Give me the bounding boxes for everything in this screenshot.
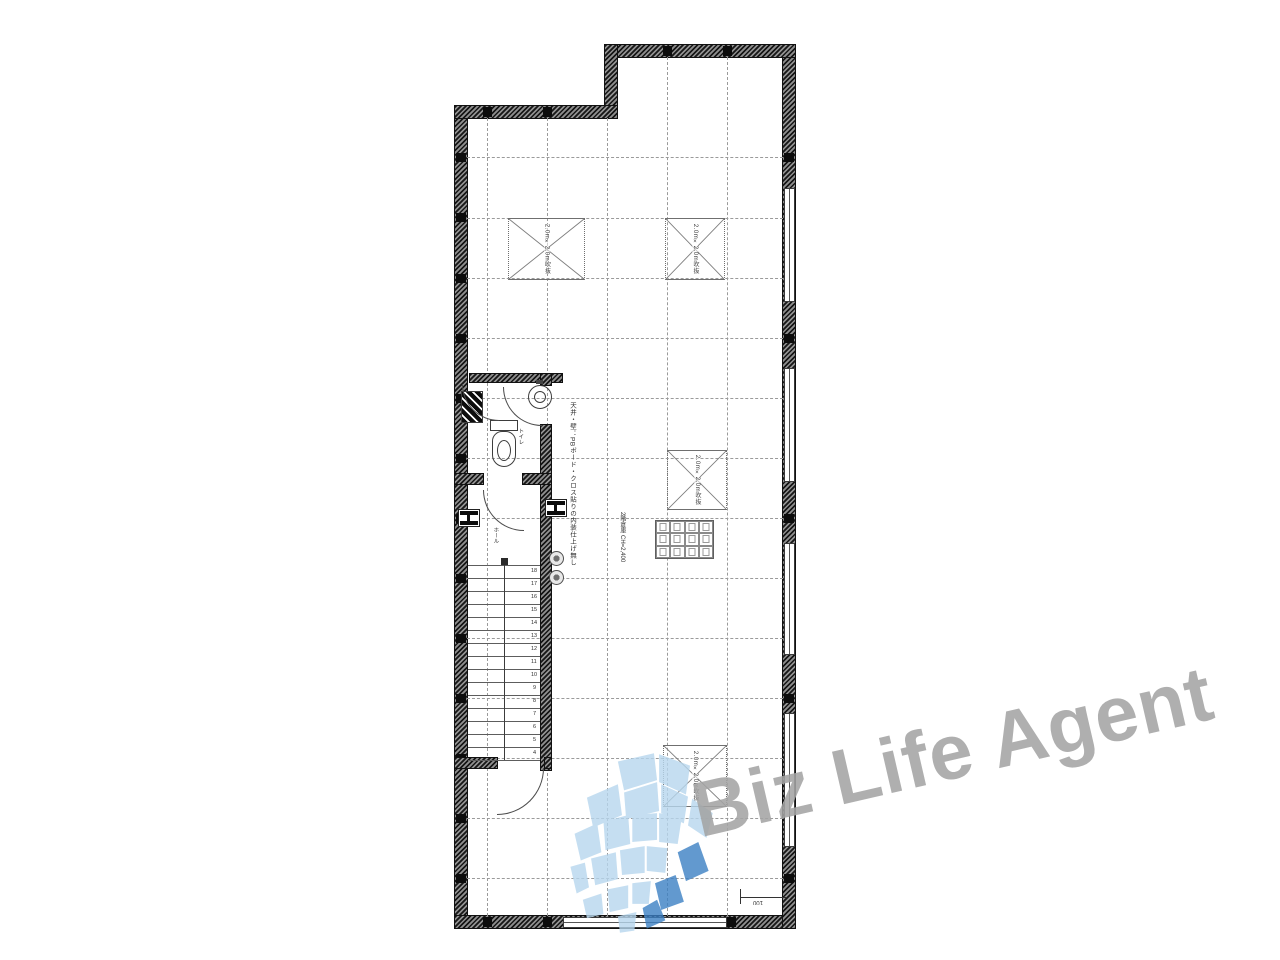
column-marker (456, 213, 466, 222)
stair-number: 13 (531, 634, 537, 640)
stair-number: 10 (531, 673, 537, 679)
void-xbox-2: 2.0m×2.0m吹抜 (665, 218, 725, 280)
panel-schedule-table (655, 520, 714, 559)
column-marker (483, 917, 492, 927)
stair-number: 17 (531, 582, 537, 588)
stair-number: 12 (531, 647, 537, 653)
wall-stair-bottom2 (545, 758, 551, 768)
void-xbox-1: 2.0m×2.0m吹抜 (508, 218, 585, 280)
grid-line (467, 638, 783, 639)
column-marker (784, 874, 794, 883)
storage-spec: 2階倉庫 CH=2,400 (618, 512, 625, 570)
grid-line (467, 698, 783, 699)
wall-top-left (455, 106, 617, 118)
stair-number: 11 (531, 660, 537, 666)
void-label: 2.0m×2.0m吹抜 (694, 455, 700, 505)
column-marker (727, 917, 736, 927)
stair-tread (468, 760, 540, 761)
scale-label: 100 (753, 899, 763, 905)
stair-stringer (504, 563, 505, 760)
grid-line (467, 338, 783, 339)
stair-arrow-start (501, 558, 508, 565)
wall-hall-top2 (523, 474, 551, 484)
toilet-label: トイレ (517, 428, 523, 445)
steel-column-icon (458, 509, 480, 527)
void-label: 2.0m×2.0m吹抜 (692, 224, 698, 274)
window-right-2 (784, 368, 795, 482)
window-right-3 (784, 543, 795, 655)
column-marker (456, 334, 466, 343)
toilet-seat (497, 440, 511, 461)
hall-label: ホール (492, 527, 498, 544)
stair-number: 4 (533, 751, 536, 757)
stair-number: 15 (531, 608, 537, 614)
floor-plan-page: トイレ ホール 18 17 16 15 14 13 12 11 10 9 8 7… (0, 0, 1280, 960)
window-right-1 (784, 188, 795, 302)
column-marker (456, 814, 466, 823)
steel-column-icon (545, 499, 567, 517)
column-marker (456, 274, 466, 283)
door-arc-hall (483, 490, 524, 531)
stair-number: 18 (531, 569, 537, 575)
scale-line (740, 897, 787, 898)
stair-number: 16 (531, 595, 537, 601)
column-marker (456, 574, 466, 583)
grid-line (487, 118, 488, 916)
grid-line (467, 157, 783, 158)
column-marker (784, 153, 794, 162)
door-arc-stair-exit (497, 768, 544, 815)
stair-number: 9 (533, 686, 536, 692)
wall-hall-top (455, 474, 483, 484)
column-marker (456, 634, 466, 643)
column-marker (483, 107, 492, 117)
stair-number: 5 (533, 738, 536, 744)
column-marker (543, 107, 552, 117)
column-marker (456, 153, 466, 162)
column-marker (723, 46, 732, 56)
void-label: 2.0m×2.0m吹抜 (544, 224, 550, 274)
stair-number: 14 (531, 621, 537, 627)
column-marker (784, 334, 794, 343)
column-marker (456, 454, 466, 463)
circled-marker-icon (549, 551, 564, 566)
washbasin-tap (536, 380, 543, 384)
column-marker (456, 874, 466, 883)
column-marker (663, 46, 672, 56)
wall-top-right (605, 45, 795, 57)
column-marker (456, 694, 466, 703)
circled-marker-icon (549, 570, 564, 585)
column-marker (784, 694, 794, 703)
finish-annotation: 天井・壁：PBボード・クロス貼りの内装仕上げ無し (568, 402, 575, 627)
column-marker (543, 917, 552, 927)
watermark-text: Biz Life Agent (684, 648, 1222, 856)
stair-number: 6 (533, 725, 536, 731)
stair-number: 8 (533, 699, 536, 705)
void-xbox-3: 2.0m×2.0m吹抜 (667, 450, 727, 510)
stair-number: 7 (533, 712, 536, 718)
toilet-tank (490, 420, 518, 431)
column-marker (784, 514, 794, 523)
